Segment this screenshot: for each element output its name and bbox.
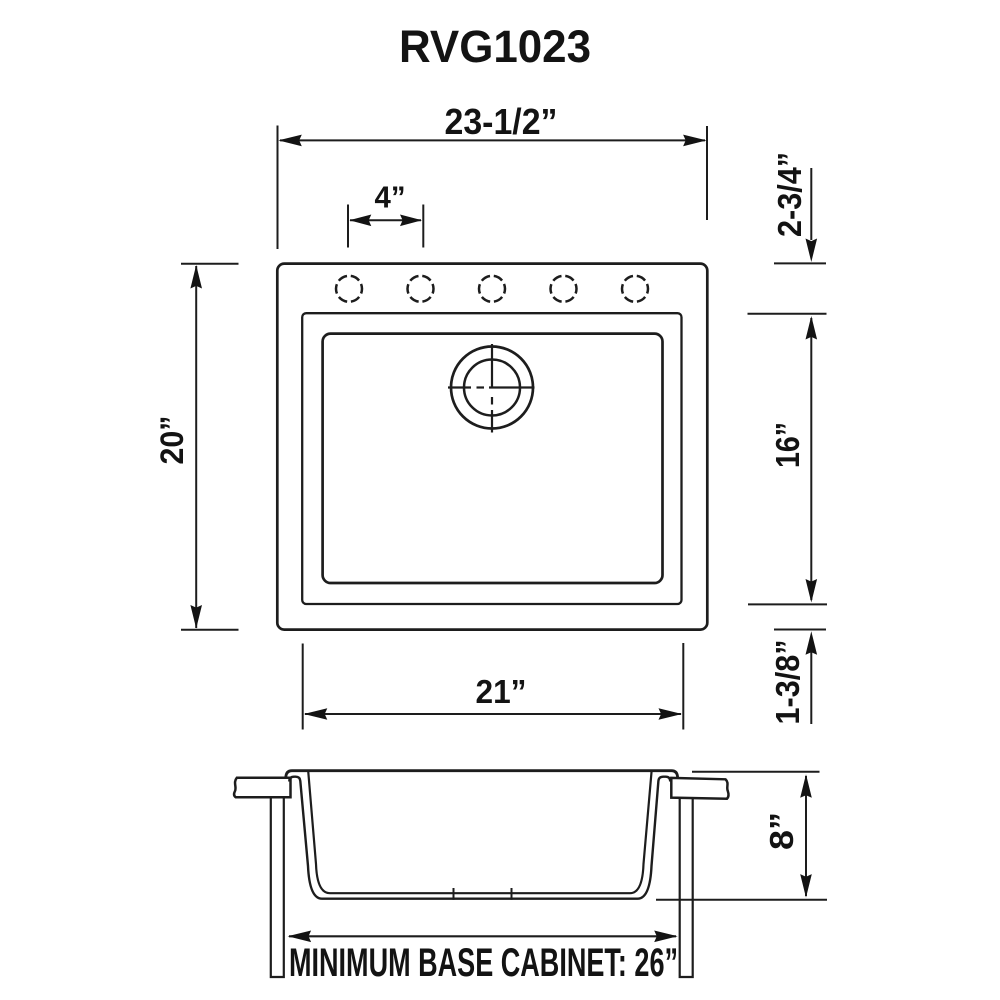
svg-text:2-3/4”: 2-3/4” <box>771 152 808 237</box>
svg-text:4”: 4” <box>375 180 406 215</box>
svg-text:8”: 8” <box>763 812 800 850</box>
svg-text:21”: 21” <box>476 673 527 710</box>
svg-text:1-3/8”: 1-3/8” <box>769 640 806 725</box>
svg-text:20”: 20” <box>154 416 190 465</box>
svg-text:23-1/2”: 23-1/2” <box>445 101 558 142</box>
svg-text:MINIMUM BASE CABINET: 26”: MINIMUM BASE CABINET: 26” <box>289 941 678 985</box>
svg-text:16”: 16” <box>769 422 806 468</box>
svg-text:RVG1023: RVG1023 <box>399 21 591 72</box>
